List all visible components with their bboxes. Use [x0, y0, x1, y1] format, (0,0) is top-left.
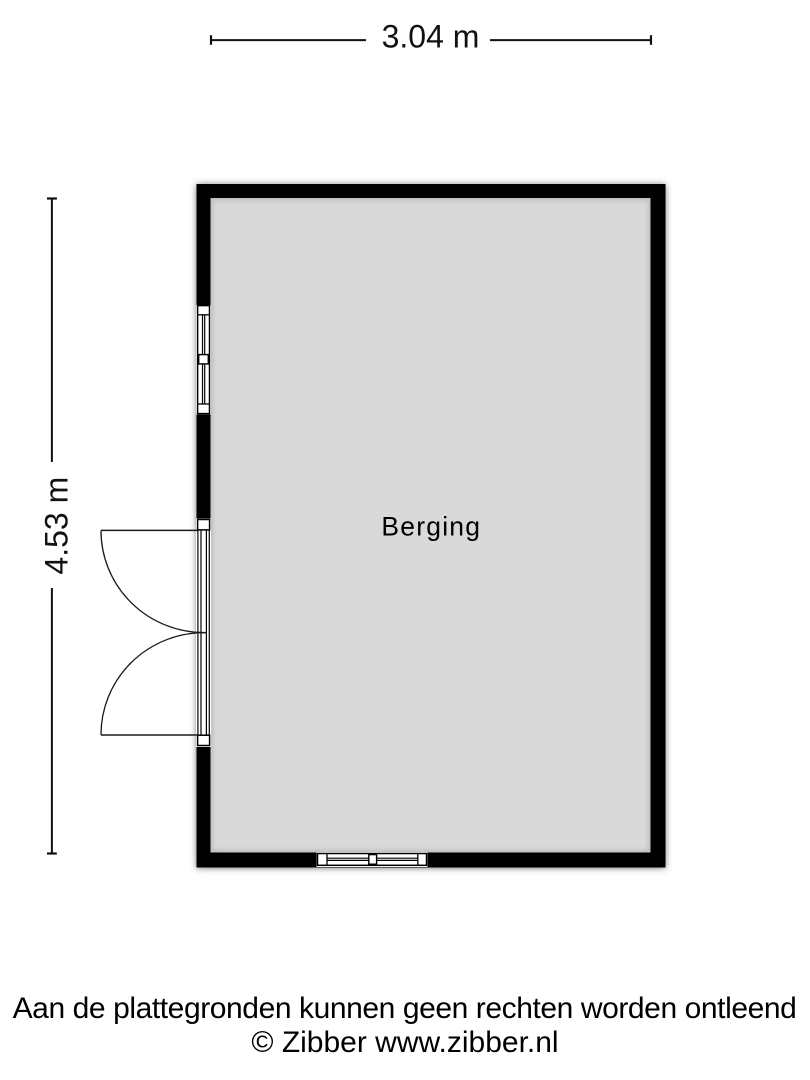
svg-text:3.04 m: 3.04 m: [382, 19, 480, 55]
svg-text:Aan de plattegronden kunnen ge: Aan de plattegronden kunnen geen rechten…: [13, 992, 797, 1025]
svg-text:Berging: Berging: [381, 512, 481, 542]
svg-text:4.53 m: 4.53 m: [39, 477, 75, 575]
svg-text:© Zibber www.zibber.nl: © Zibber www.zibber.nl: [251, 1026, 558, 1059]
